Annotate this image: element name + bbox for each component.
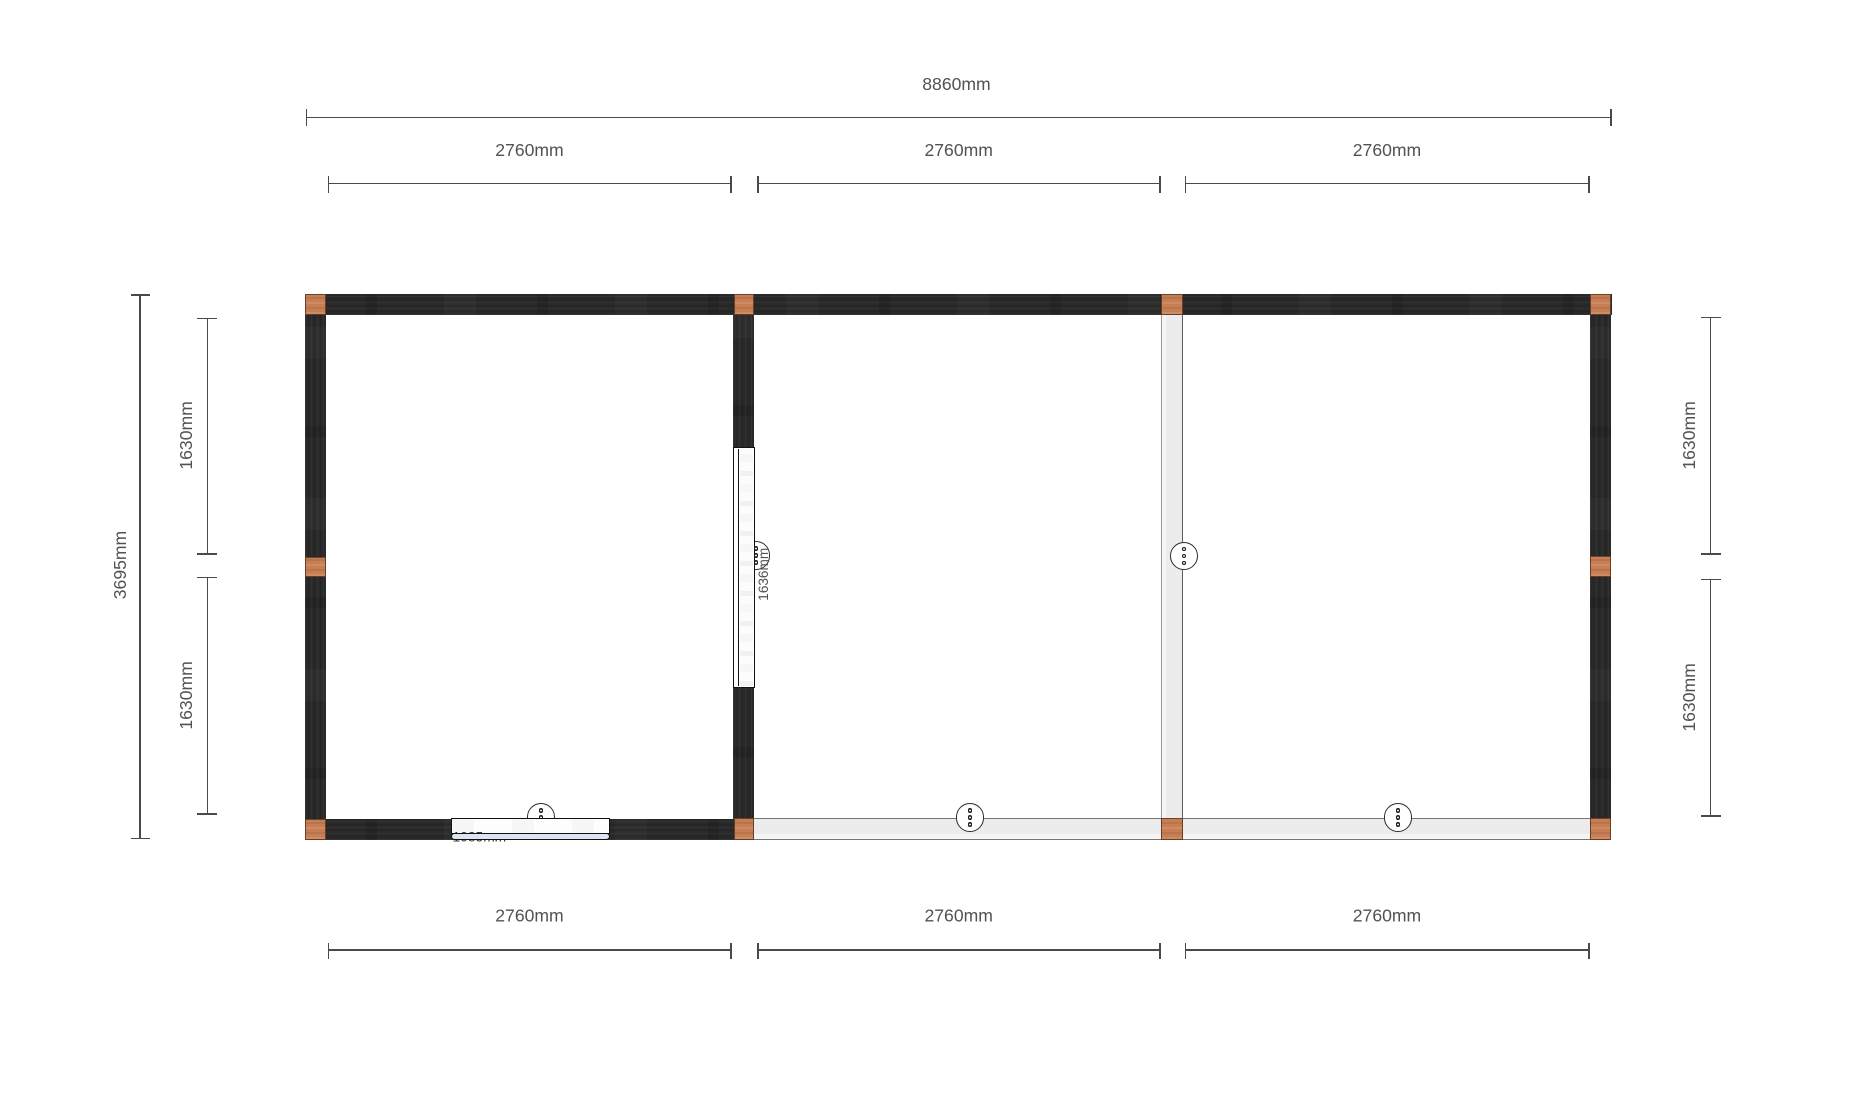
svg-text:8860mm: 8860mm (922, 74, 990, 94)
svg-text:2760mm: 2760mm (924, 905, 992, 925)
svg-text:1630mm: 1630mm (176, 661, 196, 729)
svg-text:2760mm: 2760mm (1353, 905, 1421, 925)
svg-text:2760mm: 2760mm (495, 905, 563, 925)
svg-text:2760mm: 2760mm (495, 140, 563, 160)
svg-text:1630mm: 1630mm (1679, 401, 1699, 469)
svg-text:1630mm: 1630mm (176, 401, 196, 469)
svg-text:2760mm: 2760mm (1353, 140, 1421, 160)
svg-text:2760mm: 2760mm (924, 140, 992, 160)
svg-text:3695mm: 3695mm (110, 531, 130, 599)
svg-text:1630mm: 1630mm (1679, 663, 1699, 731)
svg-text:1636mm: 1636mm (756, 548, 771, 601)
